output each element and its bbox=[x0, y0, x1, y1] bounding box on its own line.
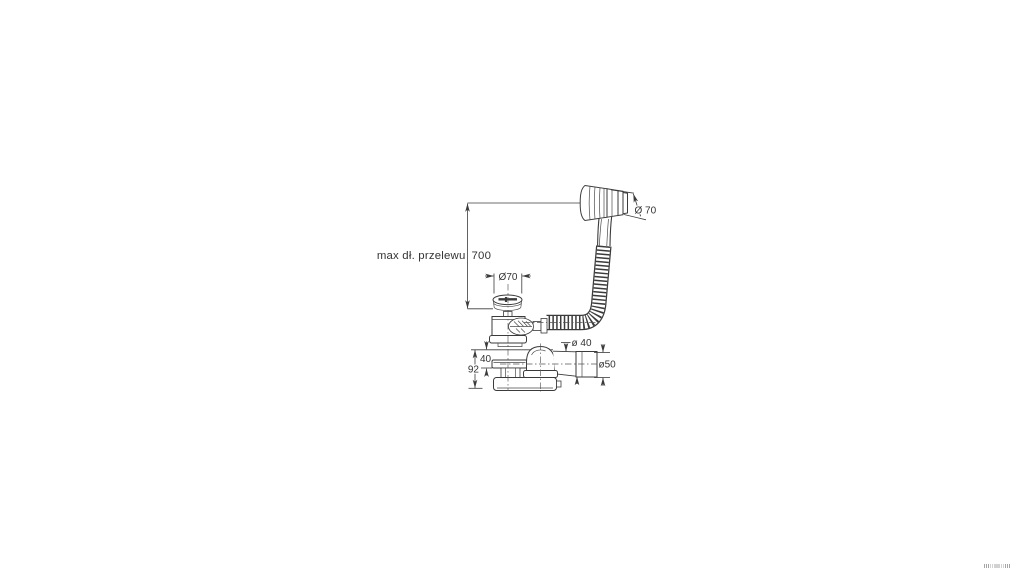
trap-height-dimensions: 40 92 bbox=[468, 342, 492, 389]
overflow-hose bbox=[547, 216, 609, 323]
pipe-diameter-label: ø 40 bbox=[572, 338, 592, 349]
bath-waste-overflow-drawing: Ø 70 Ø70 bbox=[0, 0, 1024, 576]
watermark bbox=[984, 564, 1011, 568]
plug-diameter-label: Ø70 bbox=[499, 272, 518, 283]
overflow-length-label: max dł. przelewu bbox=[377, 250, 466, 262]
outlet-diameter-label: ø50 bbox=[599, 360, 617, 371]
overflow-length-dimension: max dł. przelewu 700 bbox=[377, 203, 580, 309]
overflow-handle bbox=[580, 186, 627, 221]
technical-drawing-page: Ø 70 Ø70 bbox=[0, 0, 1024, 576]
overflow-length-value: 700 bbox=[472, 250, 492, 262]
total-height-label: 92 bbox=[468, 364, 480, 375]
drain-plug-assembly bbox=[490, 295, 548, 347]
flange-height-label: 40 bbox=[480, 354, 492, 365]
handle-diameter-label: Ø 70 bbox=[635, 206, 657, 217]
